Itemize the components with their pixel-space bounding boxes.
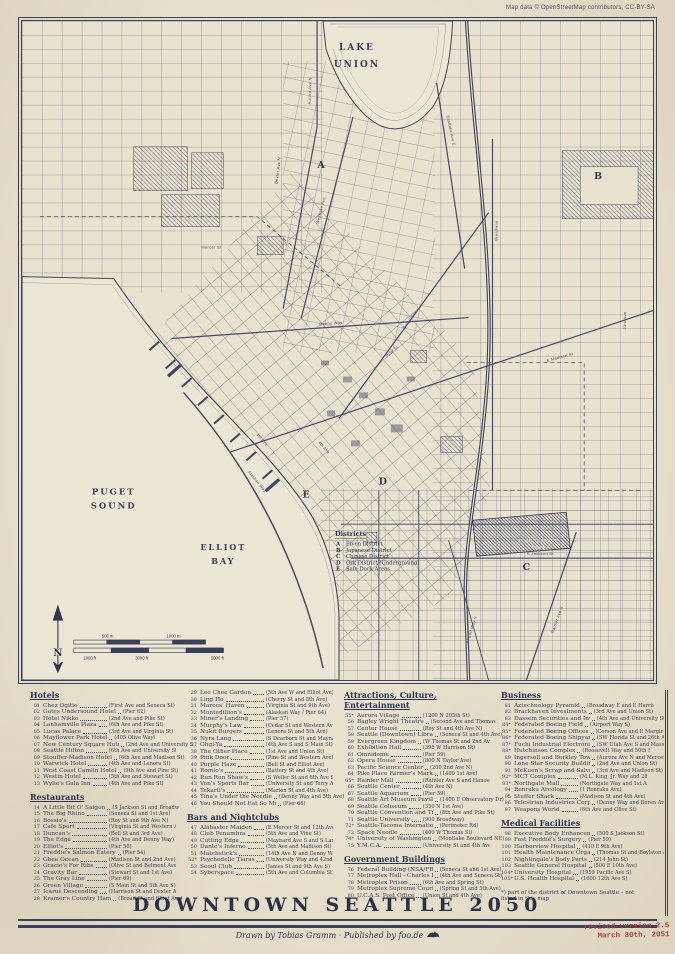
- entry-name: Wylie's Gala Inn: [43, 781, 91, 788]
- legend-side-rule: [665, 690, 668, 916]
- legend-column: 29Lee Chee Garden(5th Ave W and Elliot A…: [187, 690, 333, 906]
- leader-dots: [248, 835, 264, 836]
- entry-name: Syberspace: [200, 870, 234, 877]
- leader-dots: [278, 805, 281, 806]
- leader-dots: [231, 759, 264, 760]
- district-letter: D: [379, 476, 387, 487]
- leader-dots: [250, 720, 264, 721]
- entry-location: (6th Ave and Olive St): [580, 807, 647, 814]
- entry-number: 54: [187, 870, 197, 877]
- leader-dots: [77, 828, 107, 829]
- scale-label-metric: 1000 m: [167, 634, 181, 639]
- leader-dots: [241, 842, 264, 843]
- legend-column: Attractions, Culture, Entertainment55*Au…: [344, 690, 490, 906]
- leader-dots: [411, 795, 421, 796]
- legend-section-title: Restaurants: [30, 792, 176, 802]
- leader-dots: [409, 808, 421, 809]
- leader-dots: [435, 814, 438, 815]
- leader-dots: [248, 848, 264, 849]
- entry-location: (1600 12th Ave S): [581, 876, 648, 883]
- water-label: ELLIOT: [200, 543, 246, 552]
- leader-dots: [435, 877, 438, 878]
- leader-dots: [592, 765, 595, 766]
- leader-dots: [274, 798, 277, 799]
- title-rules: [18, 919, 657, 927]
- street-label: S Jackson St: [527, 551, 554, 556]
- leader-dots: [418, 743, 421, 744]
- leader-dots: [400, 730, 421, 731]
- legend-section-title: Bars and Nightclubs: [187, 812, 333, 822]
- street-label: Aurora Ave N: [307, 77, 313, 104]
- leader-dots: [250, 779, 264, 780]
- district-name: Chinese District: [346, 554, 390, 560]
- district-name: Elven District: [346, 542, 384, 548]
- legend: Hotels01Chez Ogitio(First Ave and Seneca…: [30, 690, 647, 906]
- map-sheet: { "meta": { "map_credit": "Map data © Op…: [0, 0, 675, 954]
- legend-entry: 13Wylie's Gala Inn(4th Ave and Pike St): [30, 781, 176, 788]
- leader-dots: [72, 835, 107, 836]
- legend-column: Business81Aztechnology Pyramid(Broadway …: [501, 690, 647, 906]
- map-canvas: LAKEUNIONPUGETSOUNDELLIOTBAY Mercer StDe…: [18, 17, 657, 684]
- leader-dots: [99, 726, 107, 727]
- leader-dots: [573, 874, 578, 875]
- leader-dots: [93, 785, 107, 786]
- leader-dots: [69, 822, 107, 823]
- legend-entry: 97Weapons World(6th Ave and Olive St): [501, 807, 647, 814]
- leader-dots: [79, 874, 107, 875]
- leader-dots: [403, 749, 421, 750]
- leader-dots: [80, 707, 107, 708]
- leader-dots: [435, 801, 438, 802]
- leader-dots: [582, 707, 585, 708]
- leader-dots: [83, 778, 107, 779]
- legend-column: Hotels01Chez Ogitio(First Ave and Seneca…: [30, 690, 176, 906]
- leader-dots: [251, 785, 264, 786]
- legend-section-title: Hotels: [30, 690, 176, 700]
- district-letter: B: [594, 171, 602, 182]
- leader-dots: [244, 727, 264, 728]
- legend-section-title: Attractions, Culture, Entertainment: [344, 690, 490, 710]
- leader-dots: [435, 890, 438, 891]
- leader-dots: [583, 841, 586, 842]
- leader-dots: [250, 753, 264, 754]
- leader-dots: [88, 765, 107, 766]
- district-name: Safe Dock Areas: [346, 566, 390, 572]
- leader-dots: [118, 772, 121, 773]
- leader-dots: [87, 815, 107, 816]
- map-data-credit: Map data © OpenStreetMap contributors, C…: [506, 5, 655, 11]
- entry-name: Weapons World: [514, 807, 560, 814]
- leader-dots: [83, 733, 107, 734]
- leader-dots: [592, 854, 595, 855]
- leader-dots: [592, 739, 595, 740]
- leader-dots: [435, 827, 438, 828]
- map-inner-frame: LAKEUNIONPUGETSOUNDELLIOTBAY Mercer StDe…: [21, 20, 654, 681]
- legend-entry: 75Y.M.C.A.(University St and 4th Ave): [344, 843, 490, 850]
- page-title: DOWNTOWN SEATTLE 2050: [0, 894, 675, 916]
- leader-dots: [400, 834, 421, 835]
- leader-dots: [402, 717, 421, 718]
- water-label: BAY: [211, 557, 235, 566]
- leader-dots: [592, 746, 595, 747]
- entry-number: 105*: [501, 876, 511, 883]
- leader-dots: [118, 713, 121, 714]
- park-label: KOBE TERRACE: [518, 538, 558, 543]
- leader-dots: [577, 752, 580, 753]
- leader-dots: [225, 772, 264, 773]
- leader-dots: [391, 756, 421, 757]
- leader-dots: [257, 861, 264, 862]
- district-letter: C: [523, 562, 531, 573]
- credit-text: Drawn by Tobias Gramm · Published by foo…: [236, 931, 424, 940]
- scale-label-feet: 3000 ft: [135, 656, 149, 661]
- leader-dots: [238, 766, 264, 767]
- leader-dots: [561, 785, 578, 786]
- legend-section-title: Business: [501, 690, 647, 700]
- leader-dots: [73, 841, 107, 842]
- district-key: C: [336, 554, 340, 560]
- entry-number: 97: [501, 807, 511, 814]
- leader-dots: [239, 855, 264, 856]
- leader-dots: [85, 887, 107, 888]
- entry-name: You Should Not Eat So Much!: [200, 801, 276, 808]
- leader-dots: [433, 840, 436, 841]
- leader-dots: [244, 733, 264, 734]
- legend-entry: 54Syberspace(5th Ave and Columbia St): [187, 870, 333, 877]
- legend-section-title: Government Buildings: [344, 854, 490, 864]
- leader-dots: [398, 762, 421, 763]
- entry-name: U.S. Health Hospital: [514, 876, 574, 883]
- leader-dots: [435, 736, 438, 737]
- park-label: PARK: [532, 545, 545, 550]
- scale-label-feet: 5000 ft: [211, 656, 225, 661]
- leader-dots: [589, 713, 592, 714]
- legend-entry: 105*U.S. Health Hospital(1600 12th Ave S…: [501, 876, 647, 883]
- leader-dots: [591, 733, 594, 734]
- leader-dots: [65, 848, 107, 849]
- entry-location: (5th Ave and Columbia St): [266, 870, 333, 877]
- leader-dots: [81, 861, 107, 862]
- leader-dots: [558, 778, 578, 779]
- district-name: Ork District (Underground): [346, 559, 419, 566]
- leader-dots: [592, 804, 595, 805]
- city-map: LAKEUNIONPUGETSOUNDELLIOTBAY Mercer StDe…: [22, 21, 653, 680]
- leader-dots: [227, 792, 264, 793]
- entry-location: (4th Ave and Pike St): [109, 781, 176, 788]
- compass-n-label: N: [53, 648, 62, 659]
- leader-dots: [226, 701, 264, 702]
- street-label: Mercer St: [201, 245, 222, 250]
- street-label: Broadway: [493, 221, 498, 241]
- leader-dots: [254, 829, 264, 830]
- entry-name: Y.M.C.A.: [357, 843, 382, 850]
- revision-stamp: revised version 2.5 March 30th, 2051: [584, 922, 670, 941]
- scale-label-metric: 500 m: [102, 634, 114, 639]
- leader-dots: [396, 782, 421, 783]
- leader-dots: [577, 848, 580, 849]
- leader-dots: [233, 740, 264, 741]
- leader-dots: [412, 821, 421, 822]
- districts-box-title: Districts: [335, 530, 366, 538]
- district-name: Japanese District: [345, 548, 393, 554]
- leader-dots: [384, 847, 421, 848]
- leader-dots: [224, 746, 264, 747]
- leader-dots: [109, 739, 112, 740]
- leader-dots: [118, 854, 121, 855]
- legend-entry: 46You Should Not Eat So Much!(Pier 66): [187, 801, 333, 808]
- leader-dots: [96, 867, 107, 868]
- leader-dots: [80, 720, 106, 721]
- leader-dots: [592, 835, 595, 836]
- leader-dots: [592, 772, 595, 773]
- legend-section-title: Medical Facilities: [501, 818, 647, 828]
- leader-dots: [410, 884, 421, 885]
- scale-label-feet: 1000 ft: [83, 656, 97, 661]
- water-label: PUGET: [92, 486, 136, 496]
- leader-dots: [589, 861, 592, 862]
- street-label: 23rd Ave: [622, 311, 627, 330]
- water-label: UNION: [334, 60, 380, 70]
- leader-dots: [576, 880, 579, 881]
- leader-dots: [592, 759, 595, 760]
- leader-dots: [592, 720, 595, 721]
- entry-location: (Pier 66): [283, 801, 350, 808]
- entry-number: 13: [30, 781, 40, 788]
- leader-dots: [107, 809, 110, 810]
- leader-dots: [236, 874, 264, 875]
- publisher-bird-icon: [427, 931, 439, 940]
- leader-dots: [435, 775, 438, 776]
- entry-number: 46: [187, 801, 197, 808]
- district-key: D: [336, 560, 341, 566]
- water-label: LAKE: [339, 43, 375, 53]
- leader-dots: [556, 798, 578, 799]
- leader-dots: [435, 871, 438, 872]
- leader-dots: [244, 714, 264, 715]
- revision-date: March 30th, 2051: [584, 931, 670, 941]
- water-label: SOUND: [91, 500, 137, 510]
- leader-dots: [426, 723, 429, 724]
- leader-dots: [585, 726, 588, 727]
- entry-location: (University St and 4th Ave): [423, 843, 490, 850]
- entry-number: 75: [344, 843, 354, 850]
- district-letter: E: [302, 489, 309, 500]
- leader-dots: [86, 752, 107, 753]
- leader-dots: [569, 791, 578, 792]
- leader-dots: [562, 811, 578, 812]
- leader-dots: [114, 759, 117, 760]
- leader-dots: [247, 707, 264, 708]
- district-key: B: [336, 548, 341, 554]
- leader-dots: [253, 694, 264, 695]
- leader-dots: [589, 867, 592, 868]
- district-letter: A: [316, 160, 325, 171]
- credit-line: Drawn by Tobias Gramm · Published by foo…: [0, 931, 675, 940]
- leader-dots: [87, 880, 107, 881]
- district-key: E: [336, 566, 340, 572]
- leader-dots: [234, 868, 264, 869]
- leader-dots: [402, 788, 421, 789]
- leader-dots: [121, 746, 124, 747]
- leader-dots: [425, 769, 428, 770]
